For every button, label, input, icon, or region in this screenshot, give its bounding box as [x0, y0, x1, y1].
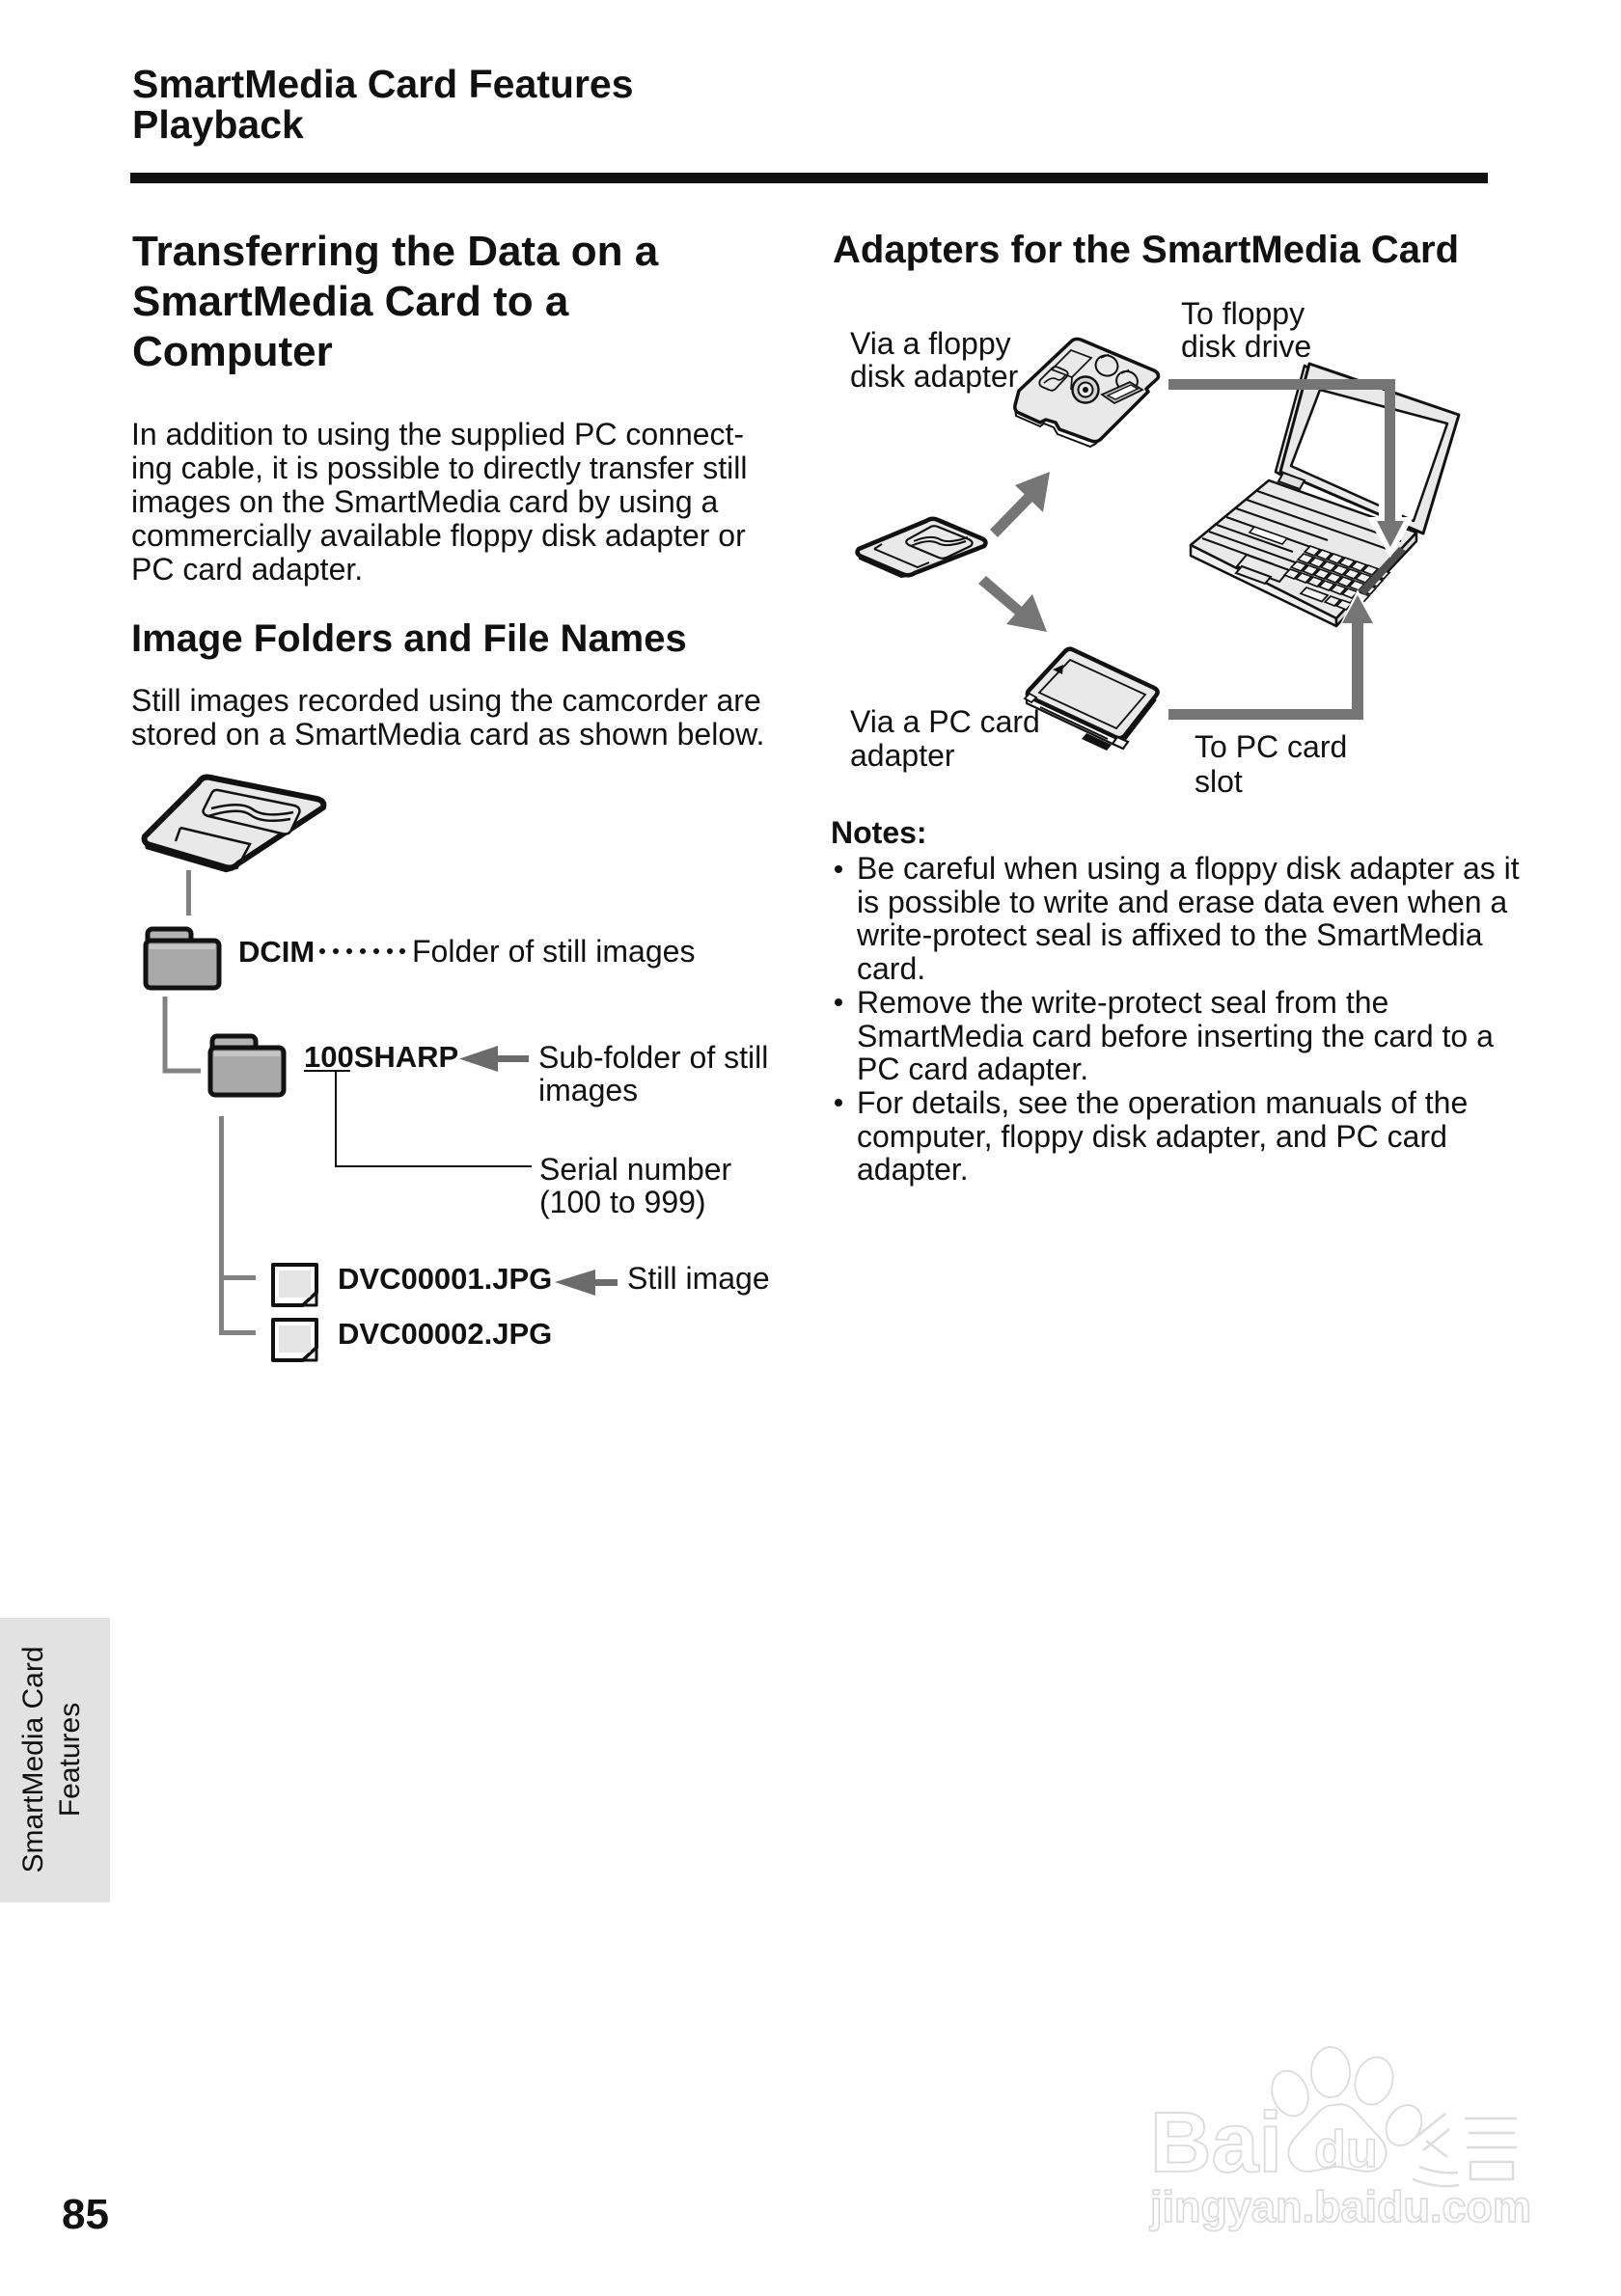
svg-text:jingyan.baidu.com: jingyan.baidu.com [1149, 2182, 1531, 2231]
svg-text:Features: Features [54, 1703, 86, 1817]
svg-text:SmartMedia Card: SmartMedia Card [17, 1646, 49, 1872]
svg-text:Bai: Bai [1150, 2094, 1282, 2190]
svg-text:du: du [1314, 2120, 1378, 2178]
